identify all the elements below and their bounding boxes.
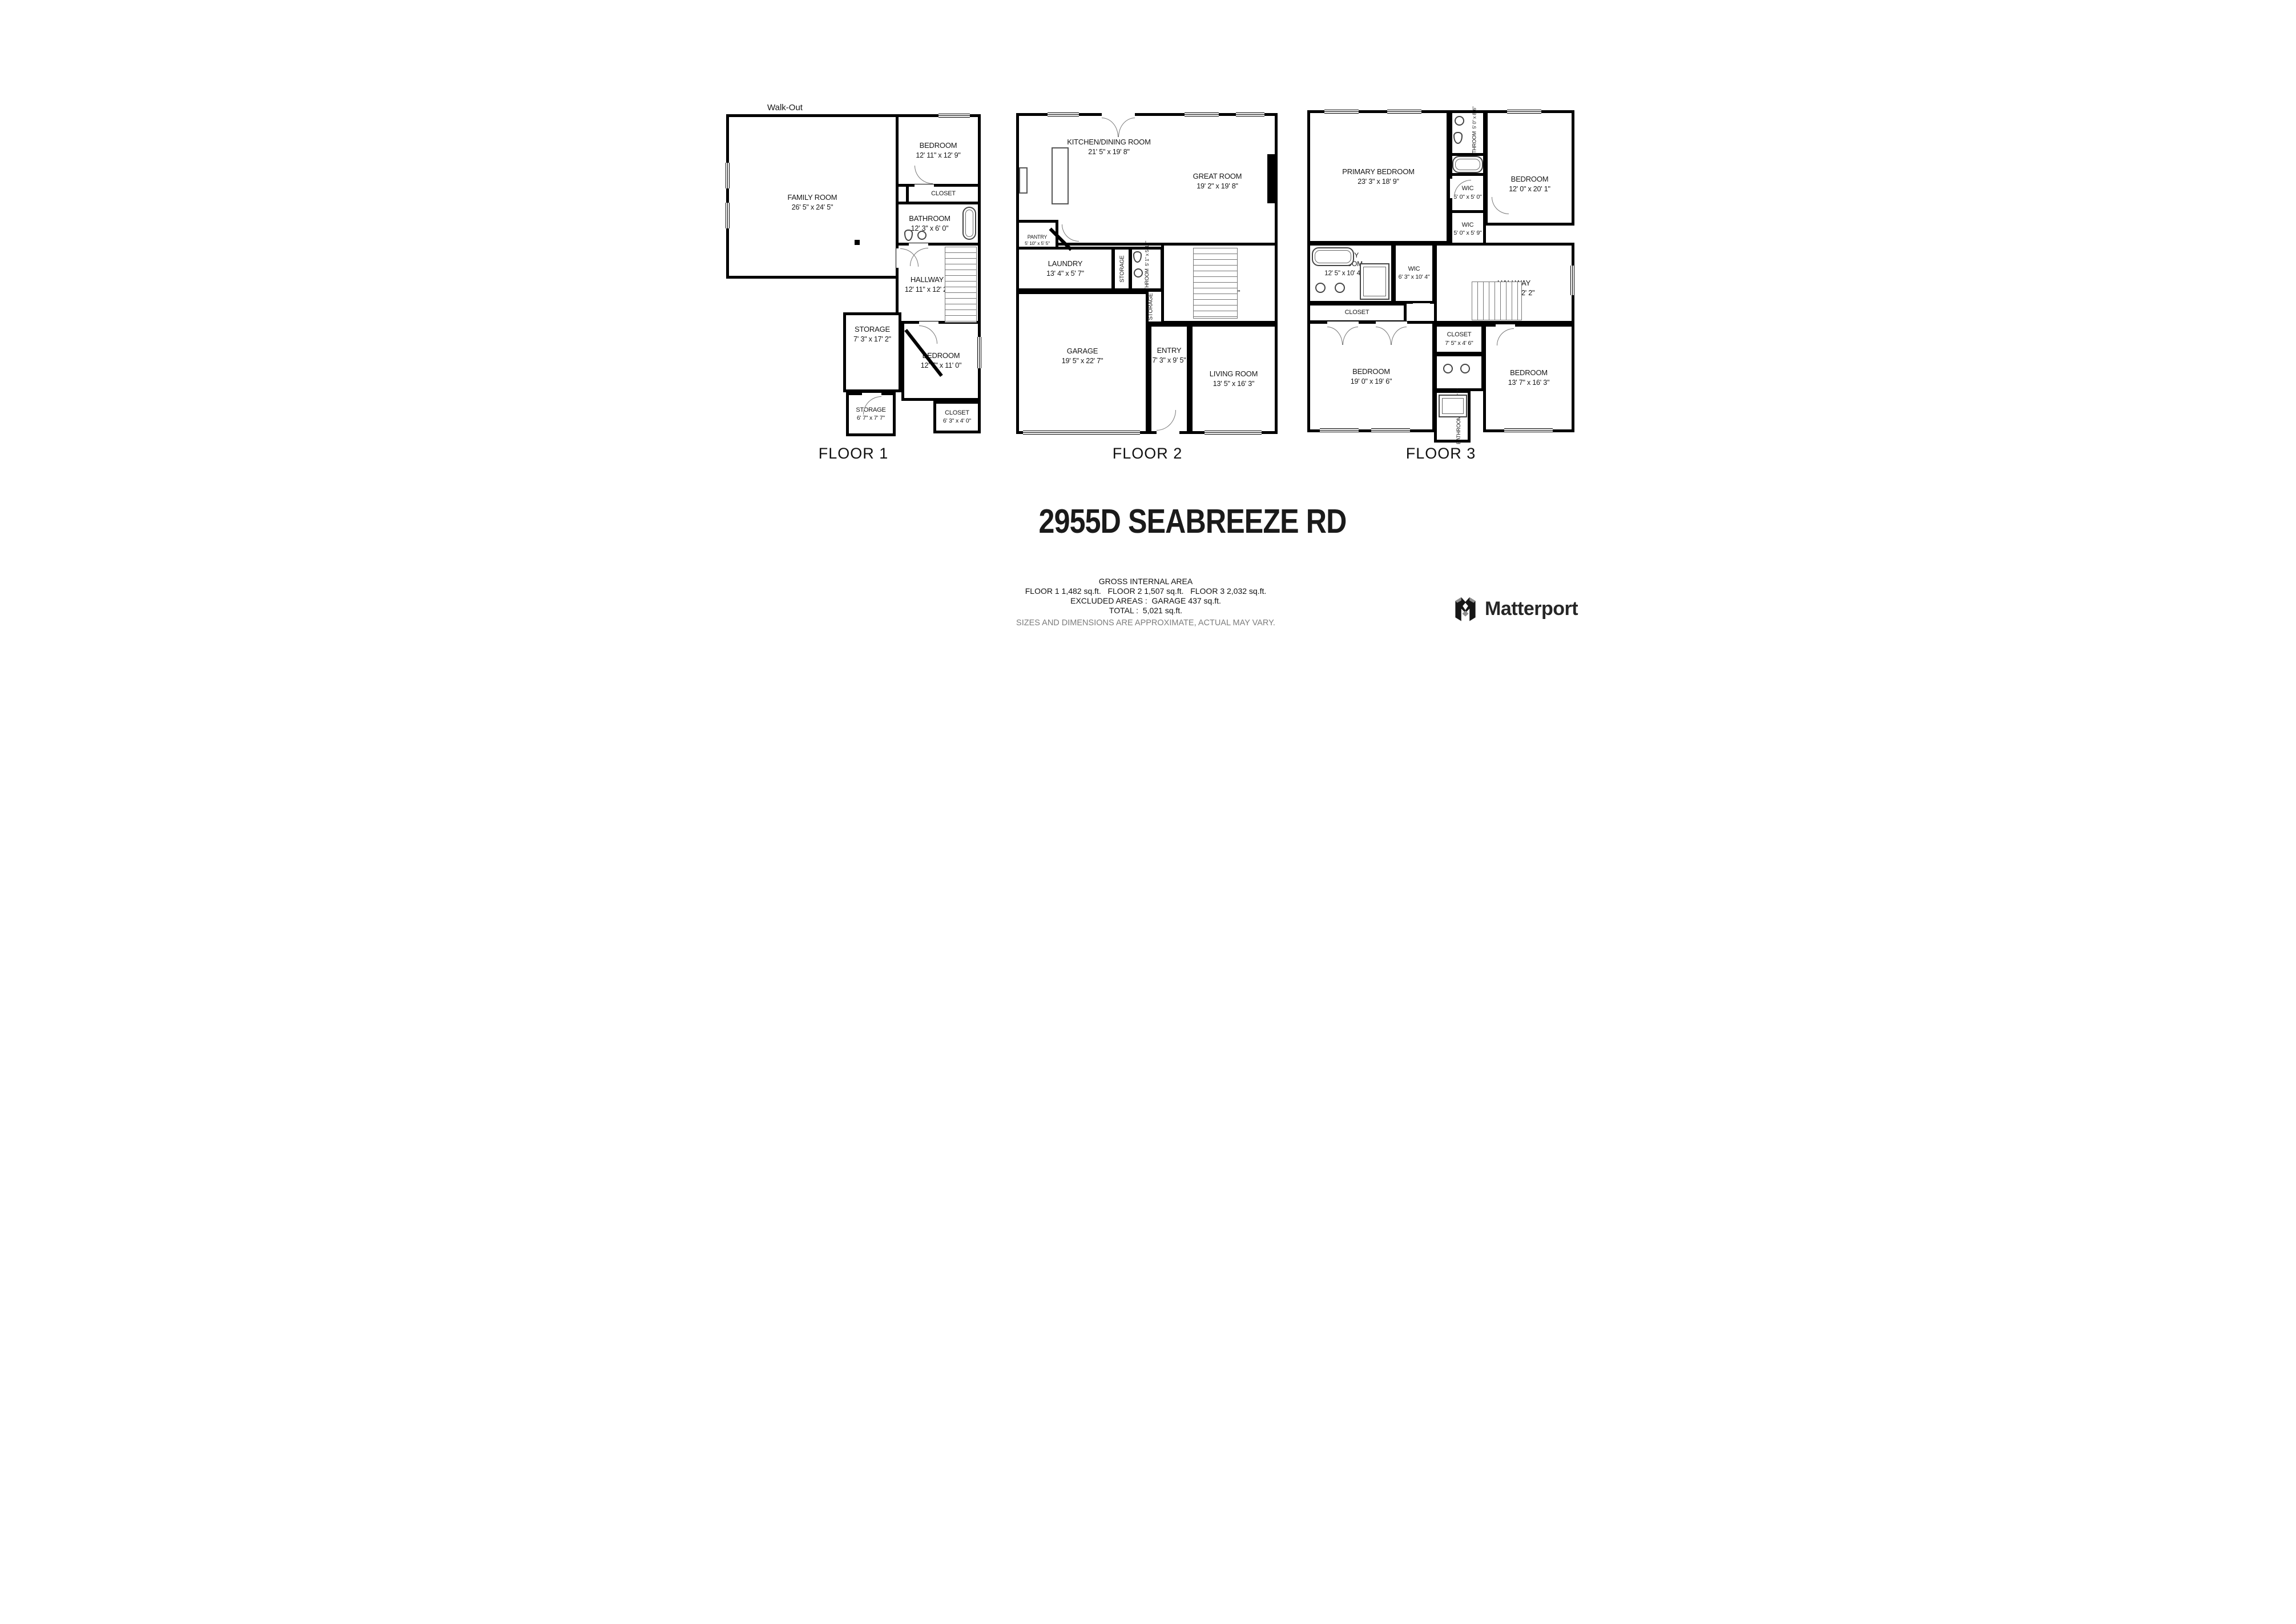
window [1387,110,1421,114]
area-disclaimer: SIZES AND DIMENSIONS ARE APPROXIMATE, AC… [974,618,1317,628]
area-total-line: TOTAL : 5,021 sq.ft. [974,606,1317,616]
room-closet-wide: CLOSET [1307,303,1407,323]
window [1320,428,1359,432]
matterport-logo: Matterport [1452,594,1578,624]
door-gap [919,321,938,325]
bathtub-icon [1452,156,1483,173]
room-closet-2: CLOSET 6' 3" x 4' 0" [933,401,981,433]
sink-icon [917,231,927,240]
page-title: 2955D SEABREEZE RD [992,502,1393,541]
room-garage: GARAGE 19' 5" x 22' 7" [1016,291,1149,434]
room-bedroom-1: BEDROOM 12' 11" x 12' 9" [896,114,981,187]
sink-icon [1315,283,1326,293]
floor-3-plan: PRIMARY BEDROOM 23' 3" x 18' 9" BATHROOM… [1307,110,1574,456]
stairs [945,247,977,323]
shower-icon [1439,395,1467,417]
window [1324,110,1359,114]
walkout-annotation: Walk-Out [767,103,803,112]
area-excluded-line: EXCLUDED AREAS : GARAGE 437 sq.ft. [974,596,1317,606]
sink-icon [1455,116,1464,126]
door-gap [1488,196,1492,215]
room-wic-3: WIC 6' 3" x 10' 4" [1393,243,1435,304]
room-bedroom-2: BEDROOM 12' 7" x 11' 0" [901,321,981,401]
door-gap [915,184,934,188]
area-floors-line: FLOOR 1 1,482 sq.ft. FLOOR 2 1,507 sq.ft… [974,586,1317,596]
window [1048,112,1079,116]
column-post [855,240,860,245]
sink-icon [1134,268,1143,278]
bathtub-icon [962,207,976,240]
window [938,114,970,118]
floor-2-label: FLOOR 2 [1016,445,1279,463]
area-summary: GROSS INTERNAL AREA FLOOR 1 1,482 sq.ft.… [974,577,1317,628]
kitchen-island [1052,147,1069,204]
window [726,163,730,188]
door-gap [909,243,928,247]
room-name: FAMILY ROOM [788,193,837,202]
window [1570,266,1574,295]
stairs [1472,282,1522,320]
room-bedroom-5: BEDROOM 13' 7" x 16' 3" [1483,324,1574,432]
front-door-gap [1157,431,1179,436]
stove-icon [1019,167,1028,194]
window [977,337,981,368]
door-gap [1413,303,1430,307]
bathtub-icon [1312,247,1354,266]
garage-door [1023,431,1140,435]
window [1205,431,1262,435]
room-primary-bedroom: PRIMARY BEDROOM 23' 3" x 18' 9" [1307,110,1449,244]
room-vanity-nook [1434,353,1484,391]
window [1236,112,1264,116]
door-gap [896,248,900,268]
floor-2-plan: KITCHEN/DINING ROOM 21' 5" x 19' 8" GREA… [1016,113,1279,459]
room-great-room: GREAT ROOM 19' 2" x 19' 8" [1162,172,1273,191]
area-heading: GROSS INTERNAL AREA [974,577,1317,586]
window [1507,110,1541,114]
room-bedroom-4: BEDROOM 19' 0" x 19' 6" [1307,321,1435,432]
double-door-gap [1327,321,1359,327]
room-family-room: FAMILY ROOM 26' 5" x 24' 5" [726,114,899,279]
floor-1-label: FLOOR 1 [726,445,981,463]
stairs [1193,248,1238,319]
window [726,203,730,228]
matterport-m-icon [1452,595,1479,622]
room-dims: 26' 5" x 24' 5" [792,203,833,212]
room-closet-3: CLOSET 7' 5" x 4' 6" [1434,324,1484,355]
room-laundry: LAUNDRY 13' 4" x 5' 7" [1016,247,1114,291]
door-gap [1496,324,1515,328]
room-storage-upper: STORAGE [1112,247,1131,291]
room-living-room: LIVING ROOM 13' 5" x 16' 3" [1190,324,1278,434]
door-gap [1450,179,1454,198]
floor-3-label: FLOOR 3 [1307,445,1574,463]
floorplan-page: Walk-Out FAMILY ROOM 26' 5" x 24' 5" BED… [700,0,1596,633]
sink-icon [1443,364,1453,373]
window [1371,428,1410,432]
double-door-gap [1102,112,1135,118]
shower-icon [1360,263,1389,300]
double-door-gap [1376,321,1407,327]
floor-1-plan: Walk-Out FAMILY ROOM 26' 5" x 24' 5" BED… [726,103,981,448]
window [1185,112,1219,116]
sink-icon [1335,283,1345,293]
room-storage-1: STORAGE 7' 3" x 17' 2" [843,312,901,392]
sink-icon [1460,364,1470,373]
matterport-wordmark: Matterport [1485,598,1578,620]
window [1504,428,1553,432]
fireplace [1267,154,1276,203]
